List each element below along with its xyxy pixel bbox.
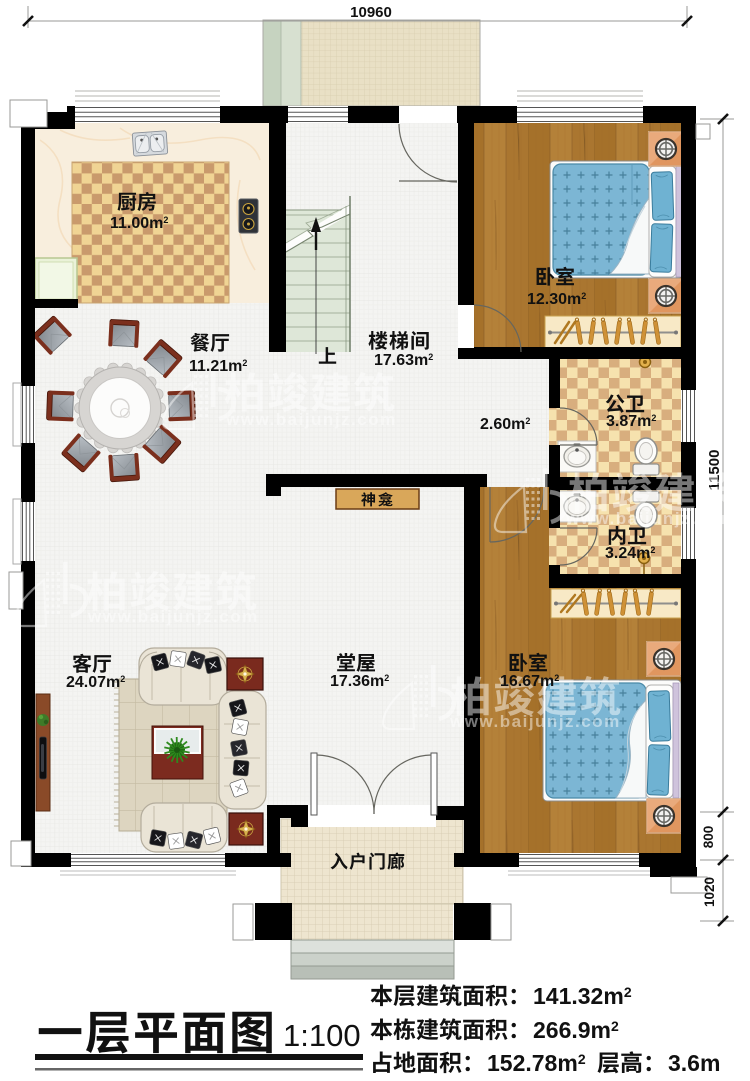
svg-text:17.63m2: 17.63m2	[374, 352, 433, 369]
svg-text:11.21m2: 11.21m2	[189, 358, 247, 375]
svg-text:17.36m2: 17.36m2	[330, 673, 389, 690]
svg-text:www.baijunjz.com: www.baijunjz.com	[565, 509, 737, 528]
svg-text:24.07m2: 24.07m2	[66, 674, 125, 691]
svg-text:10960: 10960	[350, 4, 392, 21]
svg-text:266.9m2: 266.9m2	[533, 1017, 619, 1043]
svg-text:800: 800	[701, 826, 716, 849]
svg-text:www.baijunjz.com: www.baijunjz.com	[87, 607, 259, 626]
svg-text:11.00m2: 11.00m2	[110, 215, 168, 232]
svg-text:12.30m2: 12.30m2	[527, 291, 586, 308]
svg-text:2.60m2: 2.60m2	[480, 416, 530, 433]
svg-text:www.baijunjz.com: www.baijunjz.com	[225, 410, 397, 429]
svg-text:16.67m2: 16.67m2	[500, 673, 559, 690]
svg-text:3.24m2: 3.24m2	[605, 545, 655, 562]
svg-text:1:100: 1:100	[283, 1018, 361, 1053]
svg-text:3.6m: 3.6m	[668, 1050, 720, 1076]
svg-text:152.78m2: 152.78m2	[487, 1050, 586, 1076]
svg-text:www.baijunjz.com: www.baijunjz.com	[449, 712, 621, 731]
svg-text:141.32m2: 141.32m2	[533, 983, 632, 1009]
svg-text:3.87m2: 3.87m2	[606, 413, 656, 430]
svg-text:1020: 1020	[702, 877, 717, 907]
